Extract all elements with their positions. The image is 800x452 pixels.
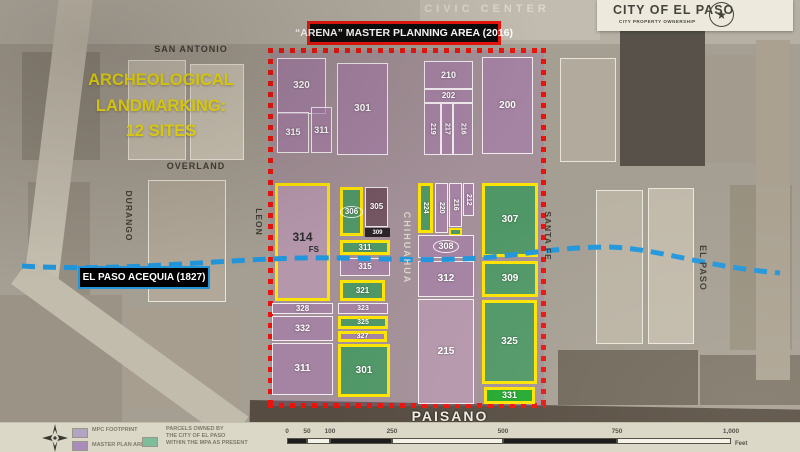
city-block [756,40,790,380]
scale-segment [617,438,731,444]
street-label-durango: DURANGO [124,191,134,242]
parcel-label: 216 [460,123,467,135]
parcel-label: 323 [357,305,369,312]
parcel-label: 321 [356,287,369,295]
parcel-212: 212 [463,183,474,216]
arena-title-box: “ARENA” MASTER PLANNING AREA (2016) [307,21,501,45]
parcel-label: 308 [433,240,458,253]
legend-swatch [72,441,88,451]
parcel-210: 210 [424,61,473,89]
map-legend-strip: MPC FOOTPRINTMASTER PLAN AREAPARCELS OWN… [0,422,800,452]
scale-segment [287,438,307,444]
parcel-label: 331 [502,391,517,400]
parcel-311: 311 [340,240,390,255]
parcel-label: 320 [293,81,310,91]
parcel-label: 219 [429,123,436,135]
parcel-label: 315 [285,128,300,137]
parcel-label: 332 [295,324,310,333]
aerial-basemap: 320315311301210202219217216200314FS30630… [0,0,800,424]
parcel-315: 315 [340,258,390,276]
parcel-label: 301 [356,366,373,376]
city-block [620,28,705,166]
scale-segment [392,438,503,444]
legend-label: MPC FOOTPRINT [92,427,138,434]
street-label-san-antonio: SAN ANTONIO [154,44,228,54]
parcel-315: 315 [277,112,309,153]
parcel-label: 325 [501,337,518,347]
parcel-label: 311 [294,364,310,374]
parcel-311: 311 [272,343,333,395]
scale-tick: 1,000 [723,428,739,435]
city-ownership-box: CITY OF EL PASO CITY PROPERTY OWNERSHIP … [597,0,793,31]
planning-map-photo: 320315311301210202219217216200314FS30630… [0,0,800,452]
parcel-label: 212 [465,194,472,206]
parcel-301: 301 [337,63,388,155]
street-label-overland: OVERLAND [167,161,226,171]
parcel-label: 307 [502,215,519,225]
parcel-323: 323 [338,303,388,314]
parcel-309: 309 [482,261,538,297]
scale-segment [503,438,617,444]
acequia-label: EL PASO ACEQUIA (1827) [83,272,206,283]
parcel-label: 325 [357,319,369,326]
parcel-sublabel: FS [309,245,319,254]
parcel-label: 309 [372,230,382,236]
parcel-label: 301 [354,104,371,114]
parcel-label: 215 [438,347,455,357]
arch-line-3: 12 SITES [60,119,262,145]
city-block [596,190,643,344]
scale-unit: Feet [735,441,747,447]
city-block [560,58,616,162]
parcel-312: 312 [418,261,474,297]
arch-line-1: ARCHEOLOGICAL [60,68,262,94]
parcel-label: 202 [442,92,455,100]
compass-rose-icon [42,424,68,452]
arena-title: “ARENA” MASTER PLANNING AREA (2016) [295,27,513,39]
parcel-220: 220 [435,183,448,233]
parcel-label: 216 [452,199,459,211]
street-label-civic-center: CIVIC CENTER [424,3,550,15]
parcel-307: 307 [482,183,538,257]
parcel-202: 202 [424,89,473,103]
parcel-325: 325 [482,300,537,384]
scale-tick: 750 [612,428,623,435]
city-subtitle: CITY PROPERTY OWNERSHIP [619,19,696,24]
street-label-leon: LEON [254,208,264,236]
parcel-314: 314FS [275,183,330,301]
parcel-320: 320 [277,58,326,114]
parcel-219: 219 [424,103,441,155]
parcel-217: 217 [441,103,453,155]
parcel-309: 309 [365,228,390,237]
parcel-label: 210 [441,71,456,80]
parcel-327: 327 [338,331,387,342]
parcel-label: 312 [438,274,455,284]
legend-label: MASTER PLAN AREA [92,442,149,449]
scale-segment [307,438,330,444]
parcel-301: 301 [338,344,390,397]
parcel-306: 306 [340,187,363,236]
city-block [648,188,694,344]
parcel-label: 220 [438,202,445,214]
parcel-325: 325 [338,316,388,329]
parcel-328: 328 [272,303,333,314]
parcel-331: 331 [484,387,535,404]
parcel-332: 332 [272,316,333,341]
parcel-label: 314 [292,231,312,243]
parcel-216: 216 [449,183,462,227]
legend-swatch [142,437,158,447]
parcel-308: 308 [418,235,474,258]
parcel-215: 215 [418,299,474,404]
parcel-200: 200 [482,57,533,154]
city-seal-icon: ★ [709,2,734,27]
legend-swatch [72,428,88,438]
city-block [558,350,698,405]
acequia-label-box: EL PASO ACEQUIA (1827) [78,266,210,289]
street-label-chihuahua: CHIHUAHUA [402,212,412,285]
parcel-label: 328 [296,305,309,313]
parcel-label: 217 [444,123,451,135]
arch-line-2: LANDMARKING: [60,94,262,120]
parcel-224: 224 [418,183,433,233]
parcel-label: 311 [314,126,329,135]
parcel-label: 200 [499,101,516,111]
parcel-305: 305 [365,187,388,227]
archeological-annotation: ARCHEOLOGICAL LANDMARKING: 12 SITES [60,68,262,145]
scale-tick: 0 [285,428,289,435]
scale-tick: 50 [303,428,310,435]
legend-label: PARCELS OWNED BY THE CITY OF EL PASO WIT… [166,426,248,447]
street-label-santa-fe: SANTA FE [543,211,553,261]
street-label-el-paso: EL PASO [698,245,708,291]
parcel-label: 311 [359,244,372,252]
parcel-label: 306 [340,206,363,218]
parcel-label: 315 [358,263,371,271]
parcel-label: 224 [422,202,429,214]
parcel-311: 311 [311,107,332,153]
scale-tick: 250 [387,428,398,435]
parcel-label: 305 [370,203,383,211]
scale-segment [330,438,392,444]
scale-tick: 100 [325,428,336,435]
parcel-label: 327 [357,333,369,340]
parcel-label: 309 [502,274,519,284]
scale-tick: 500 [498,428,509,435]
parcel-216: 216 [453,103,473,155]
parcel-321: 321 [340,280,385,301]
